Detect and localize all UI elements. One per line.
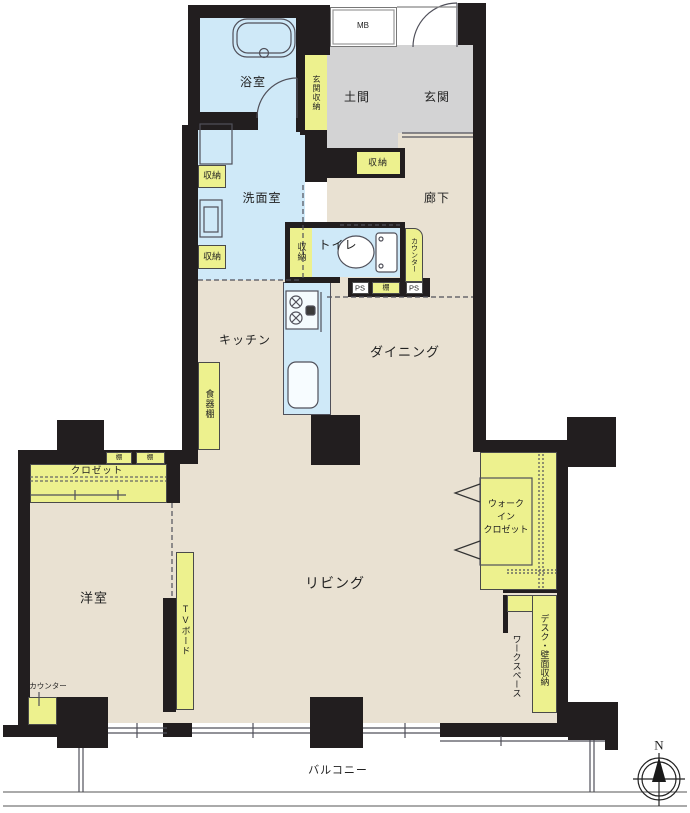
shelf-ps-label: 棚 — [383, 285, 390, 292]
pipe-space-label-2: PS — [409, 284, 419, 292]
wall — [182, 125, 198, 455]
room-label-washroom: 洗面室 — [242, 192, 281, 204]
wic-label-line2: イン — [497, 513, 515, 522]
wall — [18, 723, 57, 737]
wall — [557, 452, 568, 723]
pipe-space-label-1: PS — [355, 284, 365, 292]
room-label-entrance: 玄関 — [424, 91, 450, 103]
room-label-living: リビング — [305, 576, 365, 590]
kitchen-counter — [283, 282, 331, 415]
washroom-storage-upper-label: 収納 — [203, 172, 221, 181]
toilet-floor — [312, 228, 400, 277]
entrance-storage-label: 玄関収納 — [312, 75, 320, 111]
wall — [163, 598, 176, 712]
hall-counter-label: カウンター — [411, 238, 418, 273]
workspace-label: ワークスペース — [512, 635, 521, 698]
washroom-storage-lower-label: 収納 — [203, 253, 221, 262]
pillar — [567, 417, 616, 467]
hall-storage-label: 収納 — [368, 159, 388, 168]
floor-plan: 浴室 MB 玄関収納 土間 玄関 収納 洗面室 収納 収納 廊下 収納 トイレ … — [0, 0, 690, 813]
closet-label: クロゼット — [71, 466, 124, 476]
doma-entrance-floor — [327, 45, 473, 133]
room-label-kitchen: キッチン — [219, 334, 271, 346]
meter-box-label: MB — [357, 22, 369, 30]
wall — [605, 740, 618, 750]
wall — [458, 3, 486, 45]
room-label-toilet: トイレ — [318, 239, 357, 251]
compass-north-label: N — [654, 739, 663, 752]
wall — [473, 440, 567, 452]
wall — [18, 450, 30, 737]
room-label-bathroom: 浴室 — [240, 76, 266, 88]
tv-board-label: TVボード — [181, 604, 190, 656]
walk-in-closet-box — [480, 452, 557, 590]
wall — [166, 452, 180, 503]
wall — [296, 5, 330, 55]
shelf-label-2: 棚 — [147, 455, 154, 462]
bedroom-counter-box — [28, 697, 57, 725]
shelf-label-1: 棚 — [116, 455, 123, 462]
pillar — [57, 697, 108, 748]
room-label-doma: 土間 — [344, 91, 370, 103]
pillar — [57, 420, 104, 452]
room-label-hallway: 廊下 — [424, 192, 450, 204]
wall — [440, 723, 568, 737]
wall — [190, 112, 258, 130]
balcony-label: バルコニー — [308, 766, 368, 777]
room-label-dining: ダイニング — [370, 346, 440, 359]
wall — [163, 723, 192, 737]
wic-label-line1: ウォーク — [488, 500, 524, 509]
pillar — [310, 697, 363, 748]
wall — [473, 45, 486, 443]
pillar — [311, 415, 360, 465]
cupboard-label: 食器棚 — [205, 389, 214, 419]
wall — [285, 277, 340, 283]
bedroom-counter-label: カウンター — [29, 682, 67, 690]
bathroom-floor — [200, 17, 296, 118]
room-label-western: 洋室 — [80, 592, 108, 605]
desk-wall-storage-label: デスク・壁面収納 — [540, 614, 549, 686]
wic-label-line3: クロゼット — [483, 526, 528, 535]
pillar — [568, 702, 618, 740]
toilet-storage-label: 収納 — [297, 242, 306, 262]
